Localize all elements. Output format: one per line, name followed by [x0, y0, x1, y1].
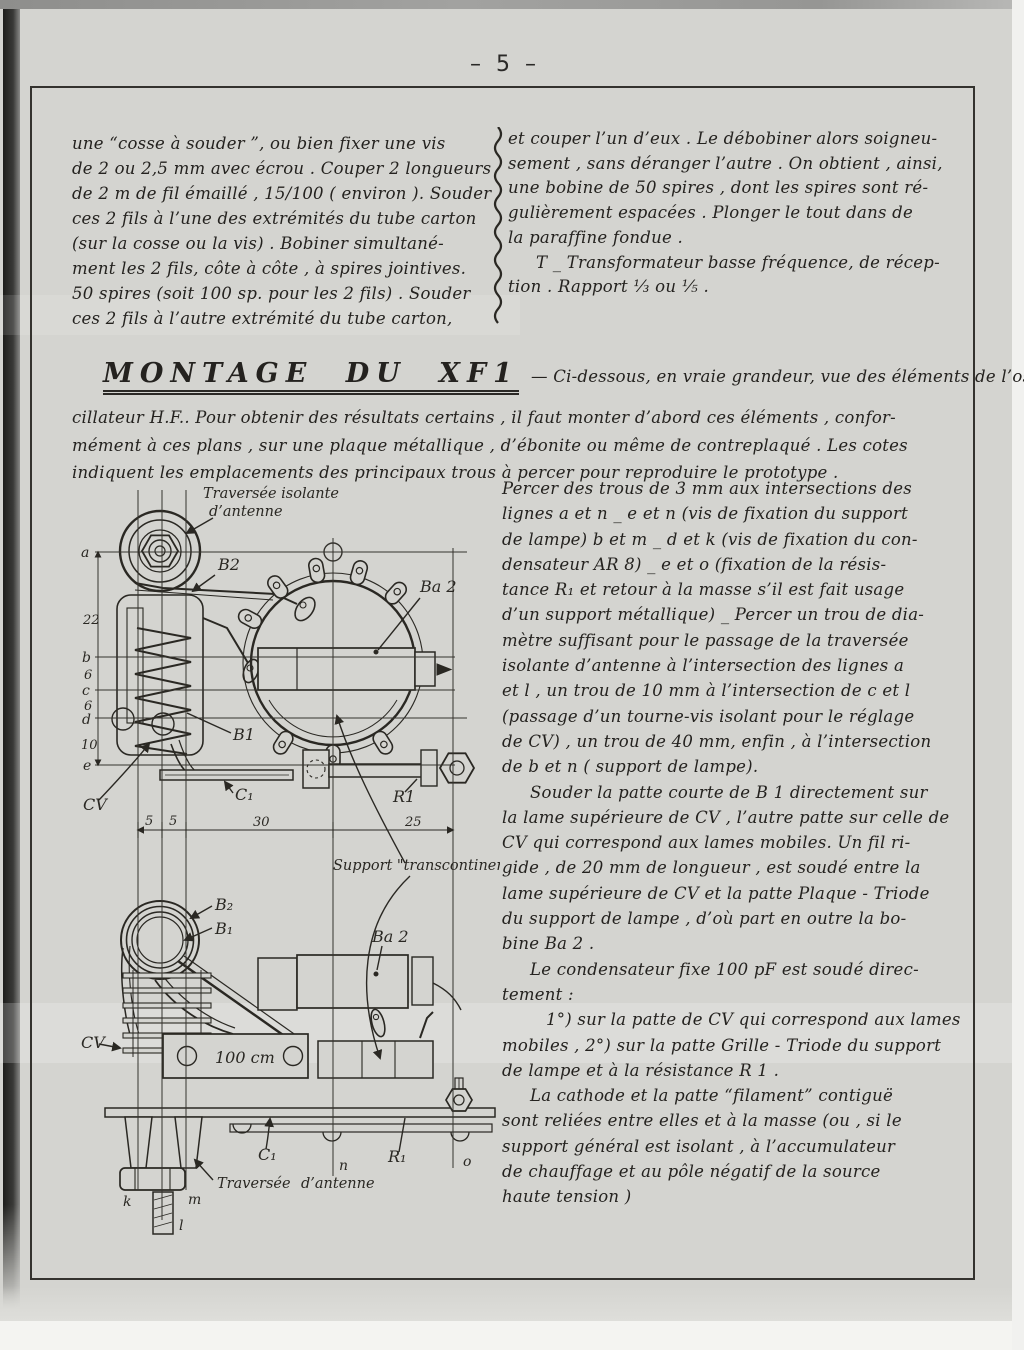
text-line: et l , un trou de 10 mm à l’intersection…: [502, 678, 958, 703]
scan-left-edge: [3, 9, 20, 1309]
dim-5a: 5: [145, 814, 153, 829]
scan-bottom-margin: [0, 1321, 1024, 1350]
text-line: ces 2 fils à l’une des extrémités du tub…: [72, 206, 502, 231]
body-right-column: Percer des trous de 3 mm aux intersectio…: [502, 476, 958, 1210]
dim-30: 30: [253, 815, 270, 830]
text-line: une “cosse à souder ”, ou bien fixer une…: [72, 131, 502, 156]
label-antenne-side: d’antenne: [301, 1176, 375, 1192]
montage-heading-row: MONTAGE DU XF1— Ci-dessous, en vraie gra…: [103, 358, 1024, 389]
column-divider-squiggle: [491, 127, 505, 325]
text-line: de b et n ( support de lampe).: [502, 754, 958, 779]
label-k: k: [123, 1194, 131, 1210]
text-line: lame supérieure de CV et la patte Plaque…: [502, 881, 958, 906]
text-line: sont reliées entre elles et à la masse (…: [502, 1108, 958, 1133]
text-line: mobiles , 2°) sur la patte Grille - Trio…: [502, 1033, 958, 1058]
label-ba2-side: Ba 2: [371, 927, 409, 946]
text-line: 1°) sur la patte de CV qui correspond au…: [502, 1007, 958, 1032]
grid-dim-22: 22: [82, 613, 100, 628]
label-support-transcontinental: Support "transcontinental": [333, 858, 500, 874]
text-line: de 2 m de fil émaillé , 15/100 ( environ…: [72, 181, 502, 206]
label-100cm: 100 cm: [215, 1048, 275, 1067]
page-number: – 5 –: [455, 52, 555, 77]
scan-top-band: [0, 0, 1024, 9]
label-cv-top: CV: [83, 795, 108, 814]
caption-antenne: d’antenne: [209, 504, 283, 520]
text-line: Souder la patte courte de B 1 directemen…: [502, 780, 958, 805]
dim-25: 25: [404, 815, 422, 830]
text-line: CV qui correspond aux lames mobiles. Un …: [502, 830, 958, 855]
label-c1-top: C₁: [235, 785, 254, 804]
text-line: La cathode et la patte “filament” contig…: [502, 1083, 958, 1108]
text-line: une bobine de 50 spires , dont les spire…: [508, 176, 953, 201]
text-line: ment les 2 fils, côte à côte , à spires …: [72, 256, 502, 281]
intro-right-column: et couper l’un d’eux . Le débobiner alor…: [508, 127, 953, 300]
r1-resistor-top-view: [303, 750, 474, 788]
text-line: lignes a et n _ e et n (vis de fixation …: [502, 501, 958, 526]
text-line: T _ Transformateur basse fréquence, de r…: [508, 251, 953, 276]
text-line: sement , sans déranger l’autre . On obti…: [508, 152, 953, 177]
label-b1-top: B1: [232, 725, 255, 744]
text-line: de CV) , un trou de 40 mm, enfin , à l’i…: [502, 729, 958, 754]
text-line: gide , de 20 mm de longueur , est soudé …: [502, 855, 958, 880]
label-b2-top: B2: [217, 555, 240, 574]
caption-traversee-isolante: Traversée isolante: [203, 486, 339, 502]
text-line: Percer des trous de 3 mm aux intersectio…: [502, 476, 958, 501]
text-line: de lampe et à la résistance R 1 .: [502, 1058, 958, 1083]
text-line: tance R₁ et retour à la masse s’il est f…: [502, 577, 958, 602]
text-line: densateur AR 8) _ e et o (fixation de la…: [502, 552, 958, 577]
c1-screw-top-view: [160, 770, 293, 780]
grid-dim-10: 10: [81, 738, 98, 753]
scan-bottom-fade: [0, 1286, 1012, 1321]
label-traversee-side: Traversée: [217, 1176, 291, 1192]
label-c1-side: C₁: [258, 1145, 277, 1164]
text-line: (passage d’un tourne-vis isolant pour le…: [502, 704, 958, 729]
text-line: tement :: [502, 982, 958, 1007]
screw-and-nut-right: [446, 1078, 472, 1111]
label-b1-side: B₁: [214, 919, 233, 938]
text-line: 50 spires (soit 100 sp. pour les 2 fils)…: [72, 281, 502, 306]
text-line: ces 2 fils à l’autre extrémité du tube c…: [72, 306, 502, 331]
text-line: la lame supérieure de CV , l’autre patte…: [502, 805, 958, 830]
text-line: haute tension ): [502, 1184, 958, 1209]
label-o: o: [463, 1154, 471, 1170]
label-b2-side: B₂: [214, 895, 233, 914]
text-line: bine Ba 2 .: [502, 931, 958, 956]
text-line: gulièrement espacées . Plonger le tout d…: [508, 201, 953, 226]
section-title: MONTAGE DU XF1: [103, 358, 519, 395]
label-r1-top: R1: [392, 787, 415, 806]
text-line: mément à ces plans , sur une plaque méta…: [72, 432, 962, 460]
label-m: m: [188, 1192, 201, 1208]
coil-ba2-top-view: [258, 648, 451, 690]
dim-5b: 5: [169, 814, 177, 829]
text-line: de 2 ou 2,5 mm avec écrou . Couper 2 lon…: [72, 156, 502, 181]
label-l: l: [179, 1218, 183, 1234]
scanned-page: – 5 – une “cosse à souder ”, ou bien fix…: [0, 0, 1024, 1350]
grid-letter-e: e: [83, 758, 91, 774]
text-line: support général est isolant , à l’accumu…: [502, 1134, 958, 1159]
text-line: d’un support métallique) _ Percer un tro…: [502, 602, 958, 627]
scan-right-margin: [1012, 0, 1024, 1350]
text-line: de chauffage et au pôle négatif de la so…: [502, 1159, 958, 1184]
montage-diagram: Traversée isolante d’antenne a 22 b 6 c …: [75, 478, 500, 1240]
text-line: tion . Rapport ⅓ ou ⅕ .: [508, 275, 953, 300]
text-line: mètre suffisant pour le passage de la tr…: [502, 628, 958, 653]
intro-left-column: une “cosse à souder ”, ou bien fixer une…: [72, 131, 502, 331]
grid-letter-b: b: [82, 650, 91, 666]
montage-intro-lines: cillateur H.F.. Pour obtenir des résulta…: [72, 404, 962, 487]
baseboard-side-view: [105, 1108, 495, 1141]
text-line: Le condensateur fixe 100 pF est soudé di…: [502, 957, 958, 982]
label-cv-side: CV: [81, 1033, 106, 1052]
text-line: du support de lampe , d’où part en outre…: [502, 906, 958, 931]
text-line: (sur la cosse ou la vis) . Bobiner simul…: [72, 231, 502, 256]
label-ba2-top: Ba 2: [419, 577, 457, 596]
section-lead: — Ci-dessous, en vraie grandeur, vue des…: [531, 367, 1024, 386]
coil-ba2-side-view: [258, 955, 461, 1010]
label-r1-side: R₁: [387, 1147, 406, 1166]
grid-dim-6a: 6: [84, 668, 92, 683]
coil-b1-b2-top-view: [112, 595, 203, 777]
text-line: cillateur H.F.. Pour obtenir des résulta…: [72, 404, 962, 432]
label-n: n: [339, 1158, 348, 1174]
grid-letter-c: c: [82, 683, 90, 699]
text-line: et couper l’un d’eux . Le débobiner alor…: [508, 127, 953, 152]
antenna-feedthrough-side-view: [120, 1117, 202, 1234]
text-line: isolante d’antenne à l’intersection des …: [502, 653, 958, 678]
grid-letter-a: a: [81, 545, 89, 561]
text-line: de lampe) b et m _ d et k (vis de fixati…: [502, 527, 958, 552]
text-line: la paraffine fondue .: [508, 226, 953, 251]
antenna-feedthrough-top-view: [120, 511, 200, 591]
grid-letter-d: d: [82, 712, 91, 728]
